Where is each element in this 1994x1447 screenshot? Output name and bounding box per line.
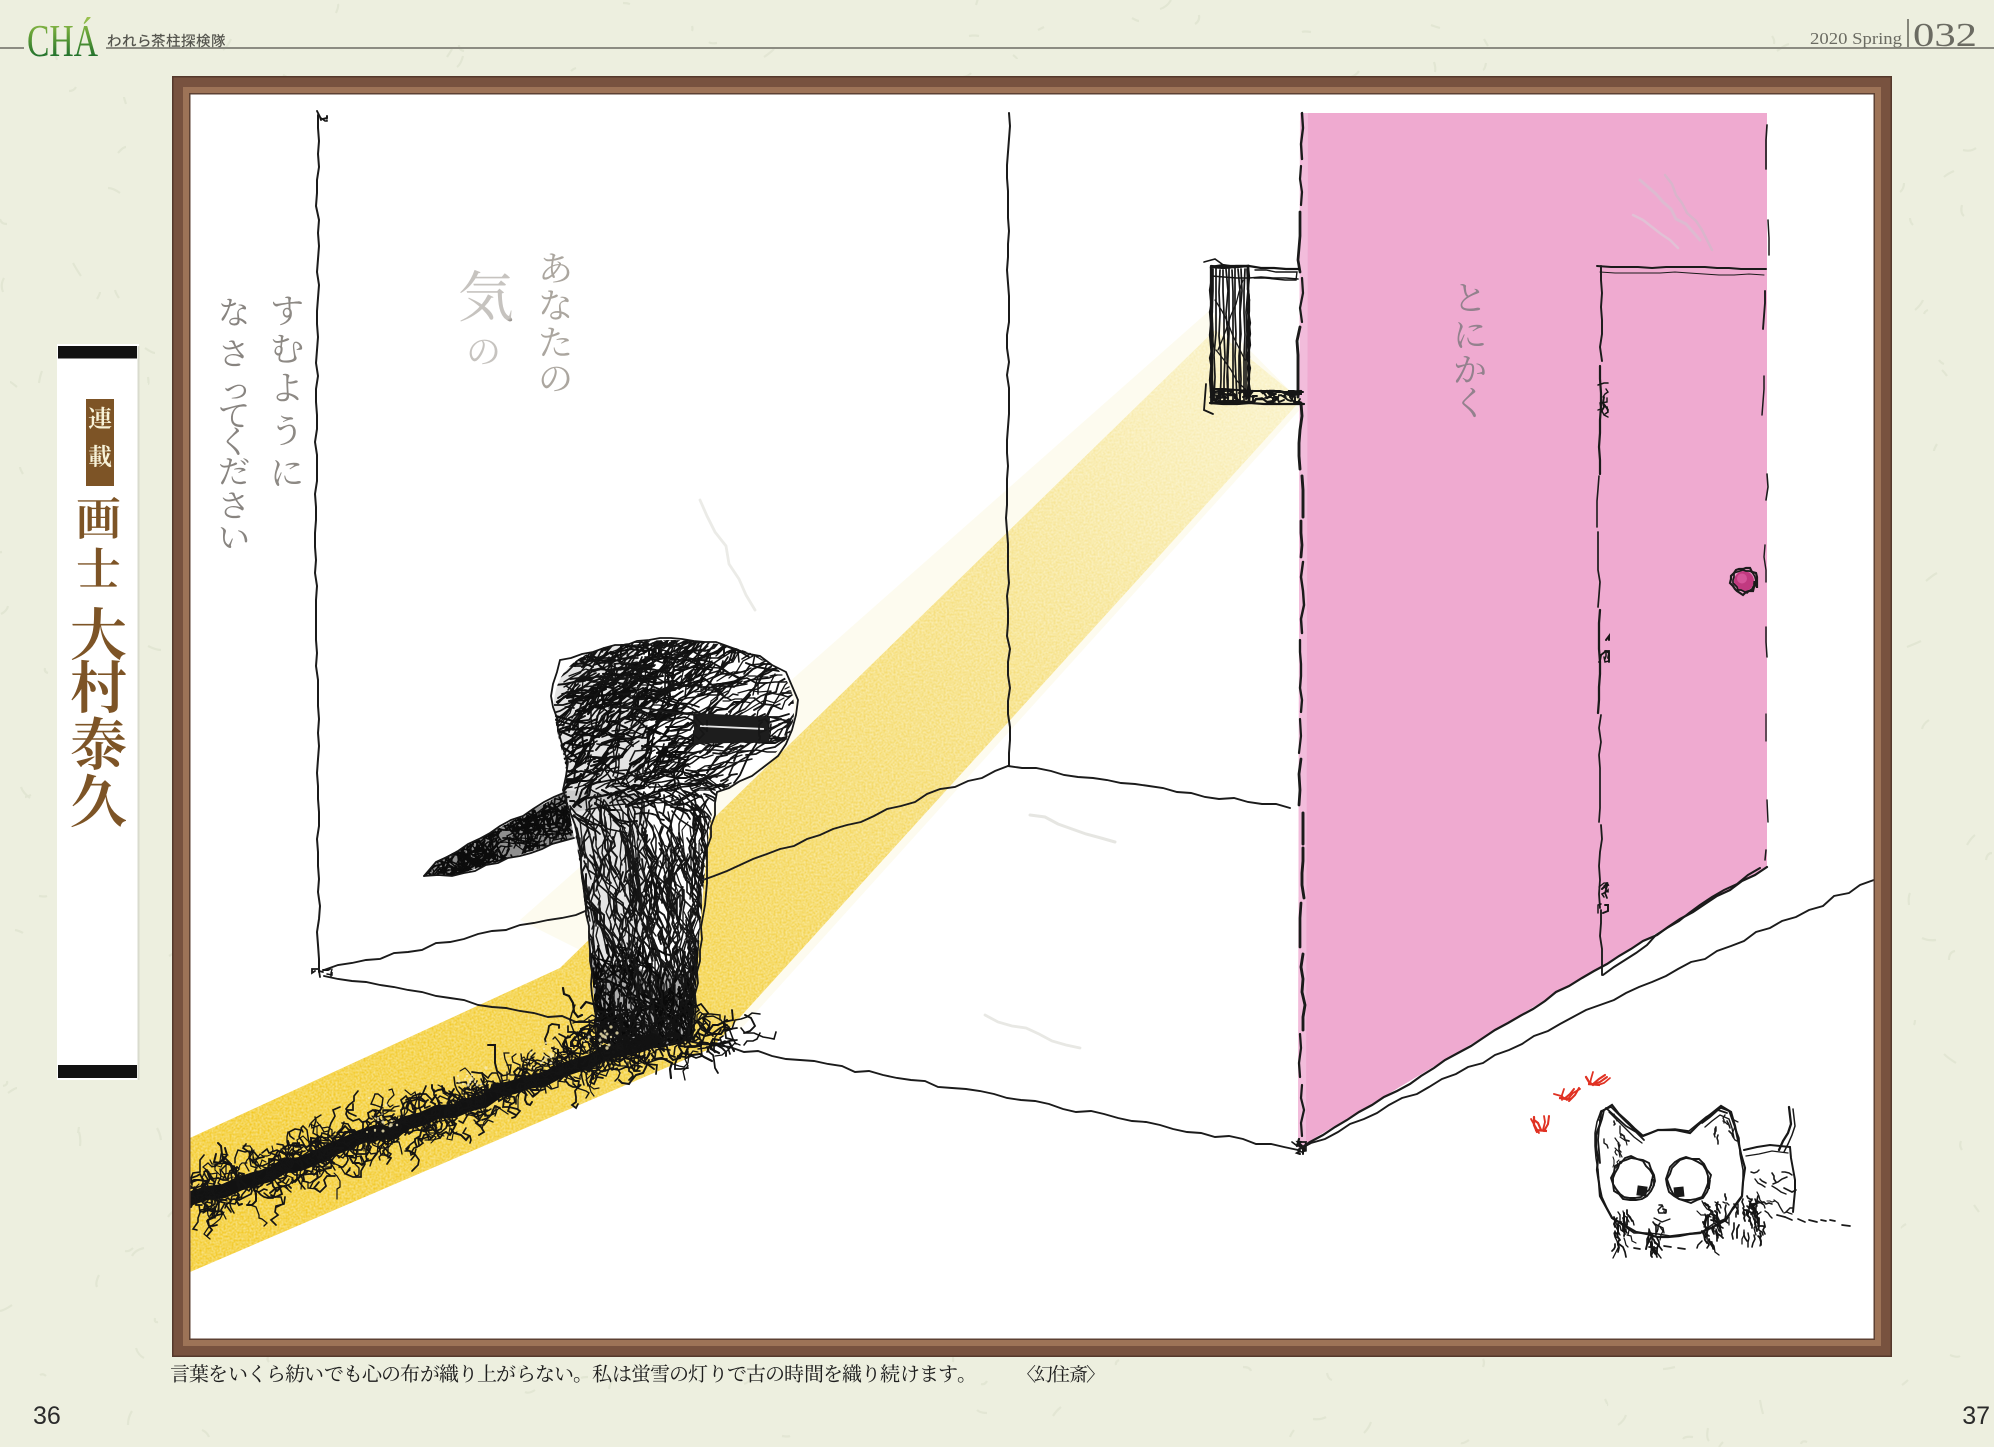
svg-text:37: 37 — [1962, 1402, 1990, 1430]
svg-text:36: 36 — [33, 1402, 61, 1430]
svg-text:CHÁ: CHÁ — [27, 15, 98, 66]
svg-text:032: 032 — [1913, 17, 1977, 54]
svg-text:2020 Spring: 2020 Spring — [1810, 29, 1903, 48]
